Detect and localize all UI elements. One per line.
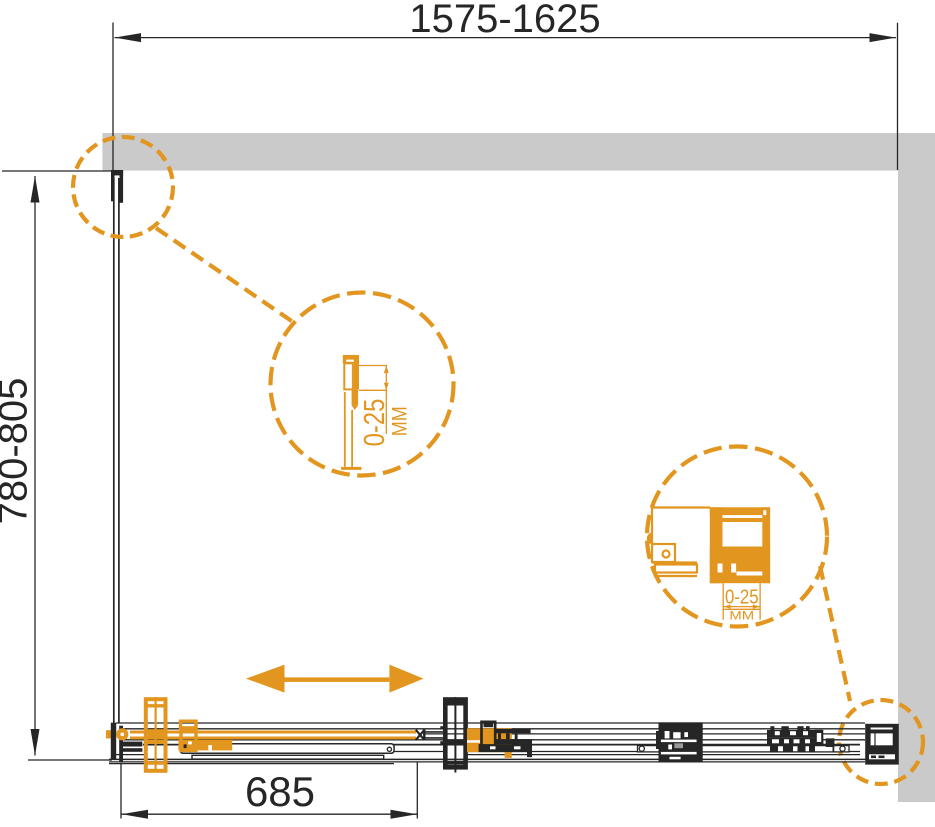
svg-text:0-25: 0-25 [359,399,391,447]
svg-text:685: 685 [245,768,315,815]
svg-text:MM: MM [389,406,412,436]
svg-text:MM: MM [729,609,754,623]
svg-text:780-805: 780-805 [0,378,36,525]
svg-text:1575-1625: 1575-1625 [409,0,600,41]
